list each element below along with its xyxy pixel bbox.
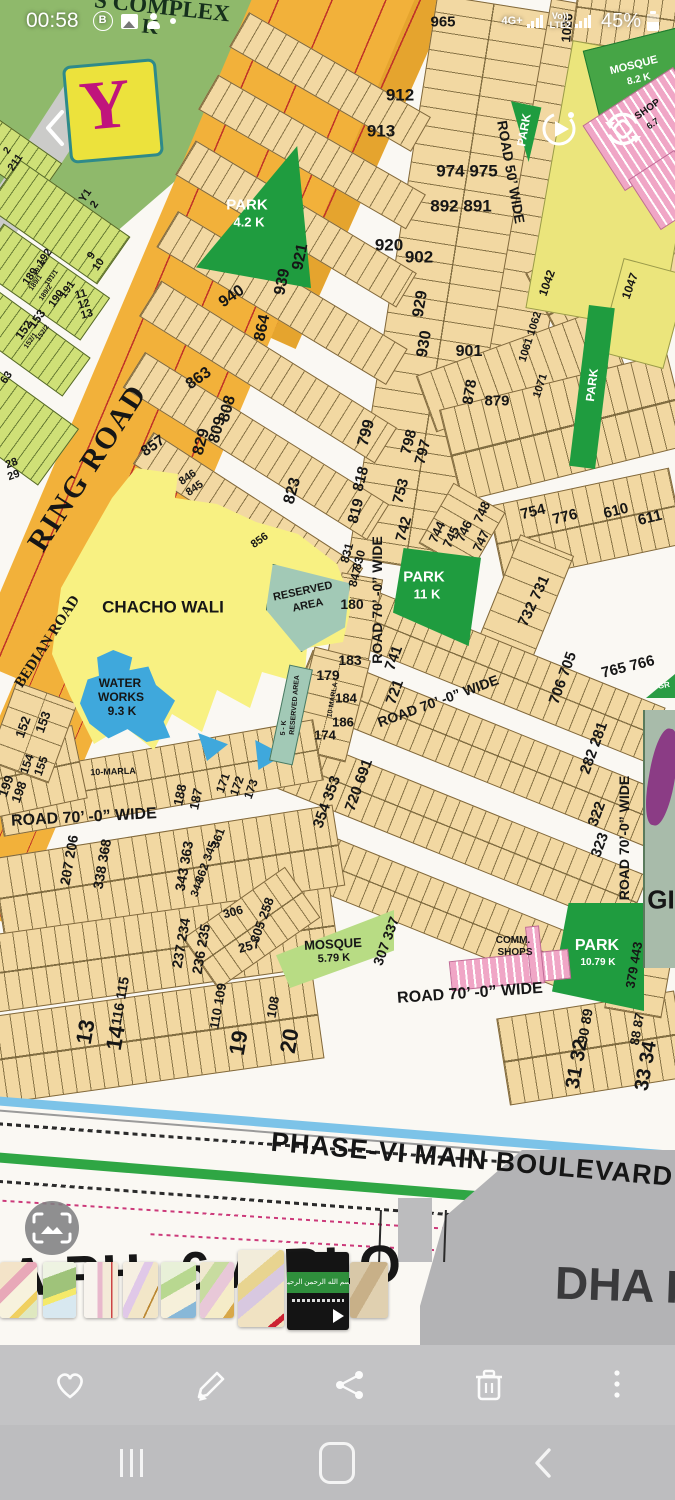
filmstrip-thumbnail[interactable] bbox=[123, 1262, 158, 1318]
map-label: WORKS bbox=[98, 691, 144, 703]
filmstrip-thumbnail[interactable] bbox=[350, 1262, 388, 1318]
map-label: 20 bbox=[277, 1027, 303, 1055]
filmstrip-video-thumbnail[interactable]: بسم الله الرحمن الرحيم bbox=[287, 1252, 349, 1330]
rotate-icon[interactable] bbox=[602, 108, 644, 150]
more-options-button[interactable] bbox=[611, 1367, 623, 1403]
map-label: 179 bbox=[316, 668, 339, 682]
map-label: 4.2 K bbox=[233, 215, 264, 228]
y-logo-letter: Y bbox=[77, 68, 134, 144]
map-pillar bbox=[398, 1198, 432, 1262]
filmstrip-thumbnail[interactable] bbox=[200, 1262, 234, 1318]
next-image-title: DHA P bbox=[554, 1260, 675, 1312]
map-label: 5 - K bbox=[280, 720, 288, 736]
map-label: 9.3 K bbox=[108, 705, 137, 717]
navigation-bar bbox=[0, 1425, 675, 1500]
recents-button[interactable] bbox=[120, 1449, 143, 1477]
map-label: 878 bbox=[460, 378, 479, 405]
map-label: 174 bbox=[314, 728, 336, 741]
map-label: 11 K bbox=[414, 587, 441, 600]
battery-percent: 45% bbox=[601, 10, 641, 33]
map-label: SHOPS bbox=[497, 948, 532, 958]
map-label: PARK bbox=[403, 569, 444, 584]
filmstrip-thumbnail[interactable] bbox=[84, 1262, 118, 1318]
digital-wellbeing-icon bbox=[146, 13, 160, 29]
map-label: 10-MARLA bbox=[90, 767, 136, 778]
share-button[interactable] bbox=[333, 1368, 367, 1402]
map-photo[interactable]: Y A PH -6 A BLO DHA P S COMPLEXK96510269… bbox=[0, 0, 675, 1345]
map-label: 187 bbox=[187, 787, 204, 811]
map-label: 13 bbox=[73, 1018, 99, 1046]
notification-dot bbox=[170, 18, 176, 24]
map-label: 5.79 K bbox=[318, 953, 351, 966]
filmstrip-thumbnail[interactable] bbox=[238, 1250, 284, 1327]
map-label: 14 bbox=[103, 1024, 129, 1052]
map-label: 974 975 bbox=[436, 162, 497, 179]
motion-photo-icon[interactable] bbox=[538, 108, 580, 150]
signal-bars-icon bbox=[575, 14, 593, 28]
vision-lens-button[interactable] bbox=[25, 1201, 79, 1255]
map-label: CHACHO WALI bbox=[102, 598, 224, 615]
video-thumb-subtitle bbox=[292, 1299, 344, 1302]
phone-screen: Y A PH -6 A BLO DHA P S COMPLEXK96510269… bbox=[0, 0, 675, 1500]
map-label: 184 bbox=[335, 691, 357, 704]
battery-icon bbox=[647, 11, 659, 31]
filmstrip-thumbnail[interactable] bbox=[43, 1262, 76, 1318]
map-label: ROAD 70’-0” WIDE bbox=[617, 776, 631, 900]
map-label: 920 bbox=[375, 236, 403, 253]
map-label: 183 bbox=[338, 653, 361, 667]
map-label: ROAD 70’ -0” WIDE bbox=[397, 981, 544, 1007]
home-button[interactable] bbox=[319, 1442, 355, 1484]
b-app-icon: B bbox=[93, 11, 113, 31]
network-type: 4G+ bbox=[502, 15, 523, 27]
action-bar bbox=[0, 1345, 675, 1425]
delete-button[interactable] bbox=[472, 1367, 506, 1403]
play-icon bbox=[333, 1309, 344, 1323]
video-thumb-band: بسم الله الرحمن الرحيم bbox=[287, 1272, 349, 1292]
favorite-button[interactable] bbox=[52, 1367, 88, 1403]
map-label: 912 bbox=[386, 86, 414, 103]
map-label: 892 891 bbox=[430, 197, 491, 214]
map-label: 323 bbox=[589, 831, 612, 860]
map-label: 765 766 bbox=[600, 653, 656, 681]
map-label: 879 bbox=[484, 393, 509, 408]
clock: 00:58 bbox=[26, 9, 79, 33]
map-label: 180 bbox=[340, 597, 363, 611]
back-button[interactable] bbox=[40, 106, 70, 150]
volte-lte-label: Vo))LTE2 bbox=[550, 12, 571, 30]
filmstrip-thumbnail[interactable] bbox=[161, 1262, 196, 1318]
map-label: 902 bbox=[405, 248, 433, 265]
map-label: 901 bbox=[456, 344, 483, 360]
map-label: 913 bbox=[367, 122, 395, 139]
filmstrip-thumbnail[interactable] bbox=[0, 1262, 37, 1318]
map-label: PARK bbox=[575, 938, 619, 954]
back-nav-button[interactable] bbox=[531, 1445, 555, 1481]
map-label: GI bbox=[647, 887, 674, 914]
map-label: 108 bbox=[265, 995, 282, 1019]
gallery-icon bbox=[121, 14, 138, 29]
map-label: 10.79 K bbox=[580, 958, 615, 968]
edit-button[interactable] bbox=[193, 1367, 229, 1403]
map-label: PARK bbox=[226, 197, 267, 212]
map-label: 19 bbox=[226, 1029, 252, 1057]
map-label: COMM. bbox=[496, 936, 530, 946]
map-label: ROAD 70’ -0” WIDE bbox=[370, 536, 384, 664]
map-label: WATER bbox=[99, 677, 141, 689]
signal-bars-icon bbox=[527, 14, 545, 28]
map-label: MOSQUE bbox=[304, 936, 362, 952]
status-bar: 00:58 B 4G+ Vo))LTE2 45% bbox=[0, 0, 675, 42]
